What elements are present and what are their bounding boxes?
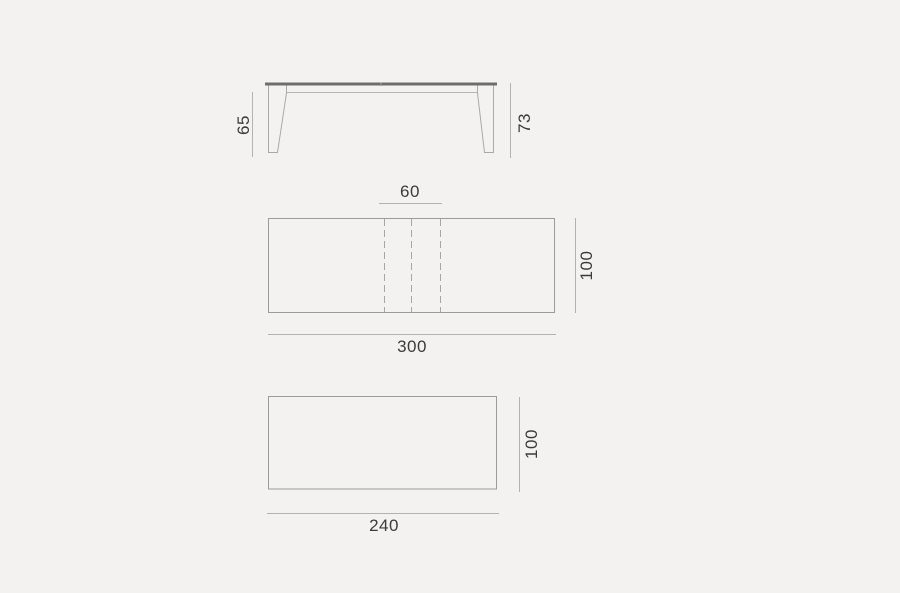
technical-drawing-canvas: 65 73 60 100 300 100 240 xyxy=(0,0,900,593)
top-view-extended: 60 100 300 xyxy=(268,182,596,356)
top-view-closed: 100 240 xyxy=(267,397,541,536)
dim-label-leg-height: 65 xyxy=(234,115,253,135)
right-leg-outline xyxy=(478,86,494,153)
dim-label-total-height: 73 xyxy=(515,113,534,133)
dim-label-extension-width: 60 xyxy=(400,182,420,201)
dim-label-closed-length: 240 xyxy=(369,516,399,535)
closed-tabletop-outline xyxy=(269,397,497,490)
side-elevation-view: 65 73 xyxy=(234,83,534,159)
dim-label-extended-depth: 100 xyxy=(577,251,596,281)
left-leg-outline xyxy=(269,86,287,153)
dimension-drawing-page: 65 73 60 100 300 100 240 xyxy=(0,0,900,593)
dim-label-closed-depth: 100 xyxy=(522,429,541,459)
dim-label-extended-length: 300 xyxy=(397,337,427,356)
